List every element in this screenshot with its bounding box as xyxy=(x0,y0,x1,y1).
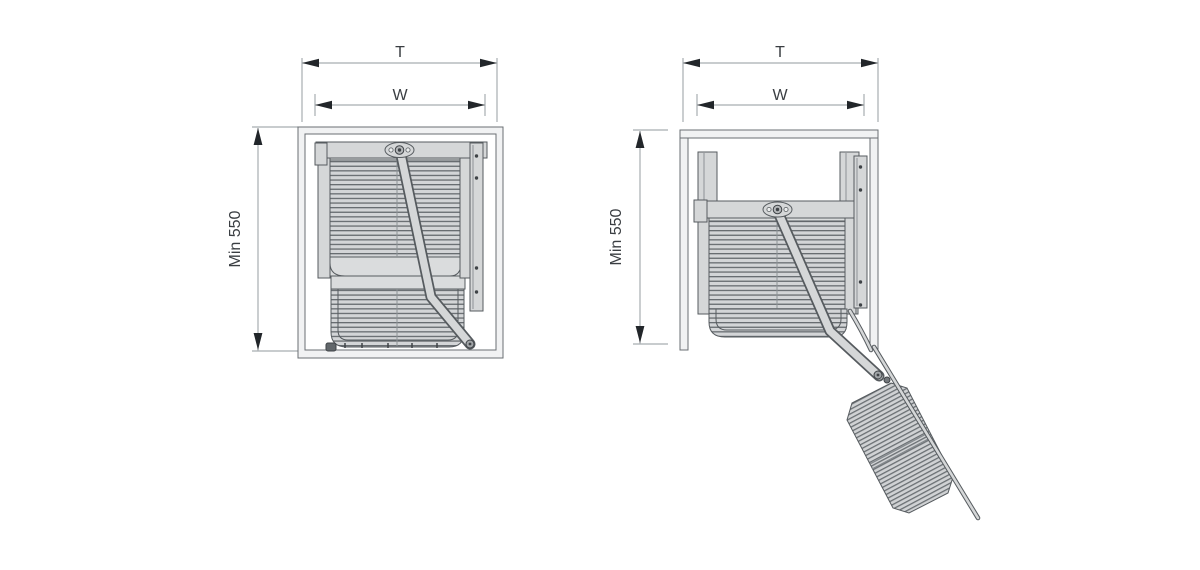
dimension-total-width: T xyxy=(683,44,878,122)
hinge xyxy=(385,143,414,158)
basket-gap-band xyxy=(331,276,465,289)
arrowhead-left xyxy=(683,59,700,68)
dimension-label-min-height: Min 550 xyxy=(608,208,625,265)
dimension-label-inner-width: W xyxy=(772,87,788,104)
diagram-closed-position: T W Min 550 xyxy=(227,44,503,358)
basket-foot xyxy=(326,343,336,351)
basket-left-edge xyxy=(318,158,330,278)
arrowhead-left xyxy=(302,59,319,68)
wire-basket-upper xyxy=(330,160,461,257)
dimension-label-total-width: T xyxy=(775,44,785,61)
cabinet-right-wall xyxy=(870,138,878,349)
arm-pivot xyxy=(466,340,474,348)
mounting-rail xyxy=(470,143,483,311)
technical-drawing-canvas: T W Min 550 xyxy=(0,0,1200,570)
arrowhead-right xyxy=(847,101,864,110)
arrowhead-right xyxy=(861,59,878,68)
basket-upper-tub-rim xyxy=(330,257,461,276)
header-left-bracket xyxy=(694,200,707,222)
dimension-inner-width: W xyxy=(697,87,864,116)
arrowhead-down xyxy=(636,326,645,343)
dimension-label-total-width: T xyxy=(395,44,405,61)
tub-side-link xyxy=(850,311,871,350)
hanging-rail-left xyxy=(698,152,717,202)
arrowhead-down xyxy=(254,333,263,350)
diagram-open-position: T W Min 550 xyxy=(608,44,978,518)
dimension-min-height: Min 550 xyxy=(227,127,298,351)
lift-mechanism xyxy=(315,142,487,351)
cabinet-top-wall xyxy=(680,130,878,138)
arrowhead-up xyxy=(636,131,645,148)
cabinet-left-wall xyxy=(680,130,688,350)
lift-mechanism xyxy=(694,152,978,518)
dimension-total-width: T xyxy=(302,44,497,122)
dimension-label-inner-width: W xyxy=(392,87,408,104)
arrowhead-right xyxy=(468,101,485,110)
header-left-bracket xyxy=(315,143,327,165)
dimension-label-min-height: Min 550 xyxy=(227,210,244,267)
hinge xyxy=(763,202,792,217)
arrowhead-left xyxy=(315,101,332,110)
basket-left-edge xyxy=(698,218,709,314)
technical-drawing-page: T W Min 550 xyxy=(0,0,1200,570)
arrowhead-up xyxy=(254,128,263,145)
mounting-rail xyxy=(854,156,867,308)
dimension-inner-width: W xyxy=(315,87,485,116)
arrowhead-left xyxy=(697,101,714,110)
dimension-min-height: Min 550 xyxy=(608,130,668,344)
arrowhead-right xyxy=(480,59,497,68)
